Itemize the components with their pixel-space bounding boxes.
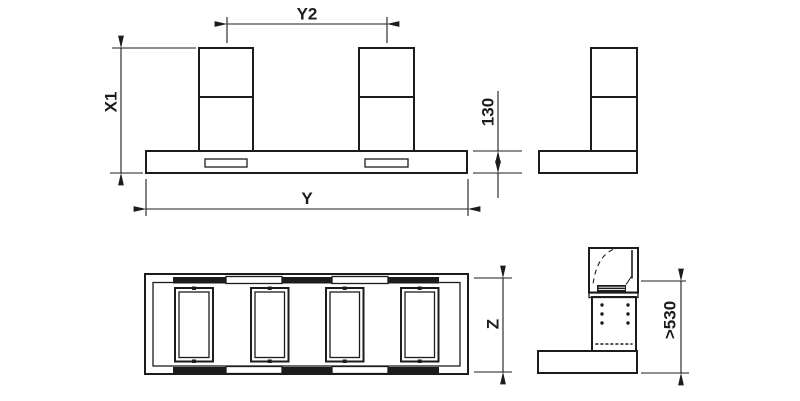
plan-column-section-1 [175,287,213,364]
pad-dark [173,277,226,284]
column-section-inner [255,292,285,358]
pad-dark [282,367,332,374]
plan-column-section-4 [401,287,439,364]
plan-column-section-2 [251,287,289,364]
dimension-label-y: Y [301,189,313,208]
plan-column-section-3 [326,287,364,364]
tick-top [268,287,272,291]
column-section-inner [330,292,360,358]
dimension-label-z: Z [484,319,503,329]
pad-light [332,367,388,374]
tick-bottom [343,360,347,364]
pad-dark [173,367,226,374]
pad-light [332,277,388,284]
side-view-top [539,48,637,173]
front-column-left [199,48,253,151]
dot [626,312,629,315]
column-section-inner [179,292,209,358]
pad-dark [388,367,439,374]
pad-dark [282,277,332,284]
column-section-outer [326,288,364,362]
column-section-outer [401,288,439,362]
pad-dark [388,277,439,284]
side-view-bottom [538,248,638,373]
front-view [146,48,467,173]
tick-bottom [268,360,272,364]
detail-base-outline [538,351,637,373]
column-section-outer [251,288,289,362]
dot [600,303,603,306]
front-base-outline [146,151,467,173]
front-base-slot-right [365,159,408,167]
column-section-inner [405,292,435,358]
dimension-label-y2: Y2 [297,5,318,24]
dimension-z: Z [474,278,512,372]
front-column-right [359,48,414,151]
pad-light [226,277,282,284]
tick-bottom [418,360,422,364]
front-base-slot-left [205,159,247,167]
dimension-y2: Y2 [227,5,387,44]
tick-bottom [192,360,196,364]
dimension-label-clearance: >530 [661,301,680,339]
vent-grille [597,285,626,292]
dimension-label-x1: X1 [102,92,121,113]
plan-inner-frame [153,283,460,367]
pad-light [226,367,282,374]
fastener-dots [600,303,629,324]
side-base-outline [539,151,637,173]
dimension-label-130: 130 [479,98,498,126]
tick-top [418,287,422,291]
tick-top [192,287,196,291]
plan-view [145,274,468,374]
column-section-outer [175,288,213,362]
side-column [591,48,637,151]
plan-top-edge-pads [173,277,439,284]
tick-top [343,287,347,291]
vent-grille-body [597,285,626,292]
dimension-clearance: >530 [641,281,689,373]
dimension-drawing: Y2 X1 130 Y Z >530 [0,0,800,401]
door-open-edge-line [626,277,632,285]
door-swing-arc [593,250,613,285]
dot [626,303,629,306]
plan-bottom-edge-pads [173,367,439,374]
dot [600,312,603,315]
dot [600,321,603,324]
dimension-y: Y [146,179,468,216]
dimension-base-height: 130 [473,91,522,198]
dot [626,321,629,324]
dimension-x1: X1 [102,48,197,173]
technical-drawing-canvas: Y2 X1 130 Y Z >530 [0,0,800,401]
